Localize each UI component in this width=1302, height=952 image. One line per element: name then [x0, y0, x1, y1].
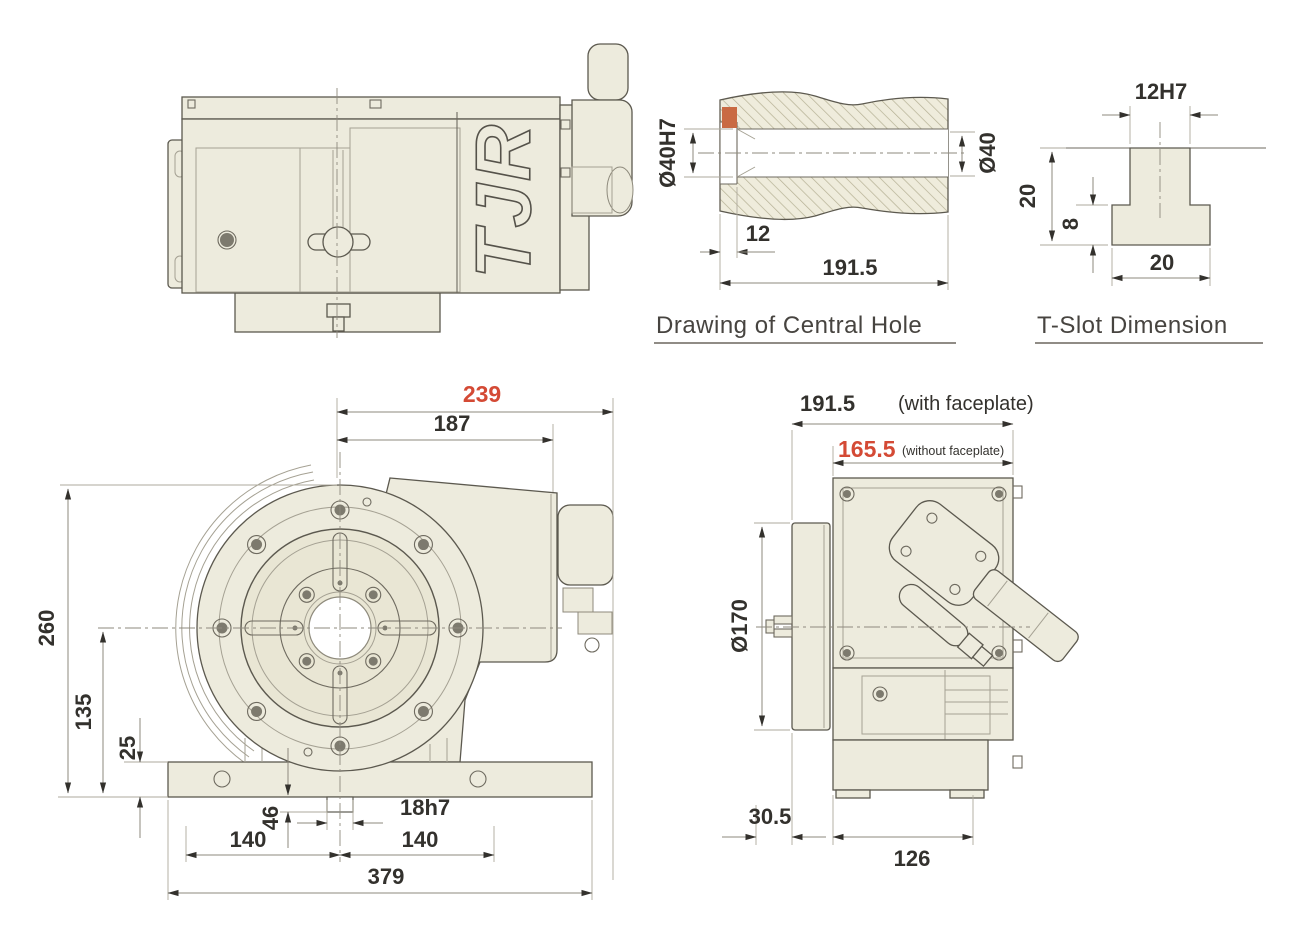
center-plug	[766, 616, 792, 637]
t-slot-view: 12H7 20 8 20 T-Slot Dimension	[1015, 79, 1266, 343]
with-faceplate-note: (with faceplate)	[898, 393, 1034, 415]
mount-left-label: 140	[230, 827, 267, 852]
front-view: 239 187 260 135 25	[34, 381, 613, 900]
dim-base-depth: 126	[833, 795, 973, 871]
counterbore-depth-label: 12	[746, 221, 770, 246]
dim-faceplate-diameter: Ø170	[727, 523, 790, 730]
slot-width-label: 12H7	[1135, 79, 1188, 104]
brand-logo: TJR	[459, 122, 547, 278]
without-faceplate-note: (without faceplate)	[902, 444, 1004, 458]
screw-icon	[220, 233, 234, 247]
mount-right-label: 140	[402, 827, 439, 852]
total-length-label: 191.5	[822, 255, 877, 280]
technical-drawing-page: TJR Ø40H7 Ø40	[0, 0, 1302, 952]
foot-pad-right	[950, 790, 984, 798]
bore-right-label: Ø40	[975, 132, 1000, 174]
dim-base-thickness: 25	[115, 718, 168, 838]
t-base-width-label: 20	[1150, 250, 1174, 275]
side-view: 191.5 (with faceplate) 165.5 (without fa…	[722, 391, 1091, 871]
with-faceplate-value: 191.5	[800, 391, 855, 416]
overall-width-label: 239	[463, 381, 501, 407]
key-width-label: 18h7	[400, 795, 450, 820]
central-hole-title: Drawing of Central Hole	[656, 312, 922, 339]
motor-cap	[588, 44, 628, 100]
dim-bore-right: Ø40	[950, 132, 1000, 176]
section-highlight-marker	[722, 107, 737, 128]
rotary-table-dimension-drawing: TJR Ø40H7 Ø40	[0, 0, 1302, 952]
bore-left-label: Ø40H7	[655, 118, 680, 188]
center-height-label: 135	[71, 694, 96, 731]
front-base-width-label: 379	[368, 864, 405, 889]
without-faceplate-value: 165.5	[838, 436, 896, 462]
motor-end-cover	[558, 505, 613, 585]
connector-box	[563, 588, 593, 612]
dim-key-width: 18h7	[297, 795, 450, 830]
dim-base-width: 20	[1112, 248, 1210, 286]
dim-flange-depth: 8	[1058, 177, 1108, 273]
base-thickness-label: 25	[115, 736, 140, 760]
foot-pad-left	[836, 790, 870, 798]
dim-depth-without-faceplate: 165.5 (without faceplate)	[833, 436, 1013, 476]
t-nut-profile	[1112, 148, 1210, 245]
side-base	[833, 740, 988, 790]
lower-housing	[833, 668, 1013, 740]
total-height-label: 260	[34, 610, 59, 647]
front-base	[168, 762, 592, 797]
total-depth-label: 20	[1015, 184, 1040, 208]
faceplate-diameter-label: Ø170	[727, 599, 752, 653]
base-depth-label: 126	[894, 846, 931, 871]
dim-center-height: 135	[71, 632, 103, 793]
body-width-label: 187	[434, 411, 471, 436]
t-bolt	[327, 304, 350, 317]
central-hole-view: Ø40H7 Ø40 12 191.5 Drawing of Central Ho…	[654, 92, 1000, 343]
side-elevation-view: TJR	[168, 44, 633, 338]
t-slot-title: T-Slot Dimension	[1037, 312, 1228, 339]
front-overhang-label: 30.5	[749, 804, 792, 829]
flange-depth-label: 8	[1058, 218, 1083, 230]
dim-body-width: 187	[337, 411, 553, 492]
dim-front-overhang: 30.5	[722, 733, 826, 845]
